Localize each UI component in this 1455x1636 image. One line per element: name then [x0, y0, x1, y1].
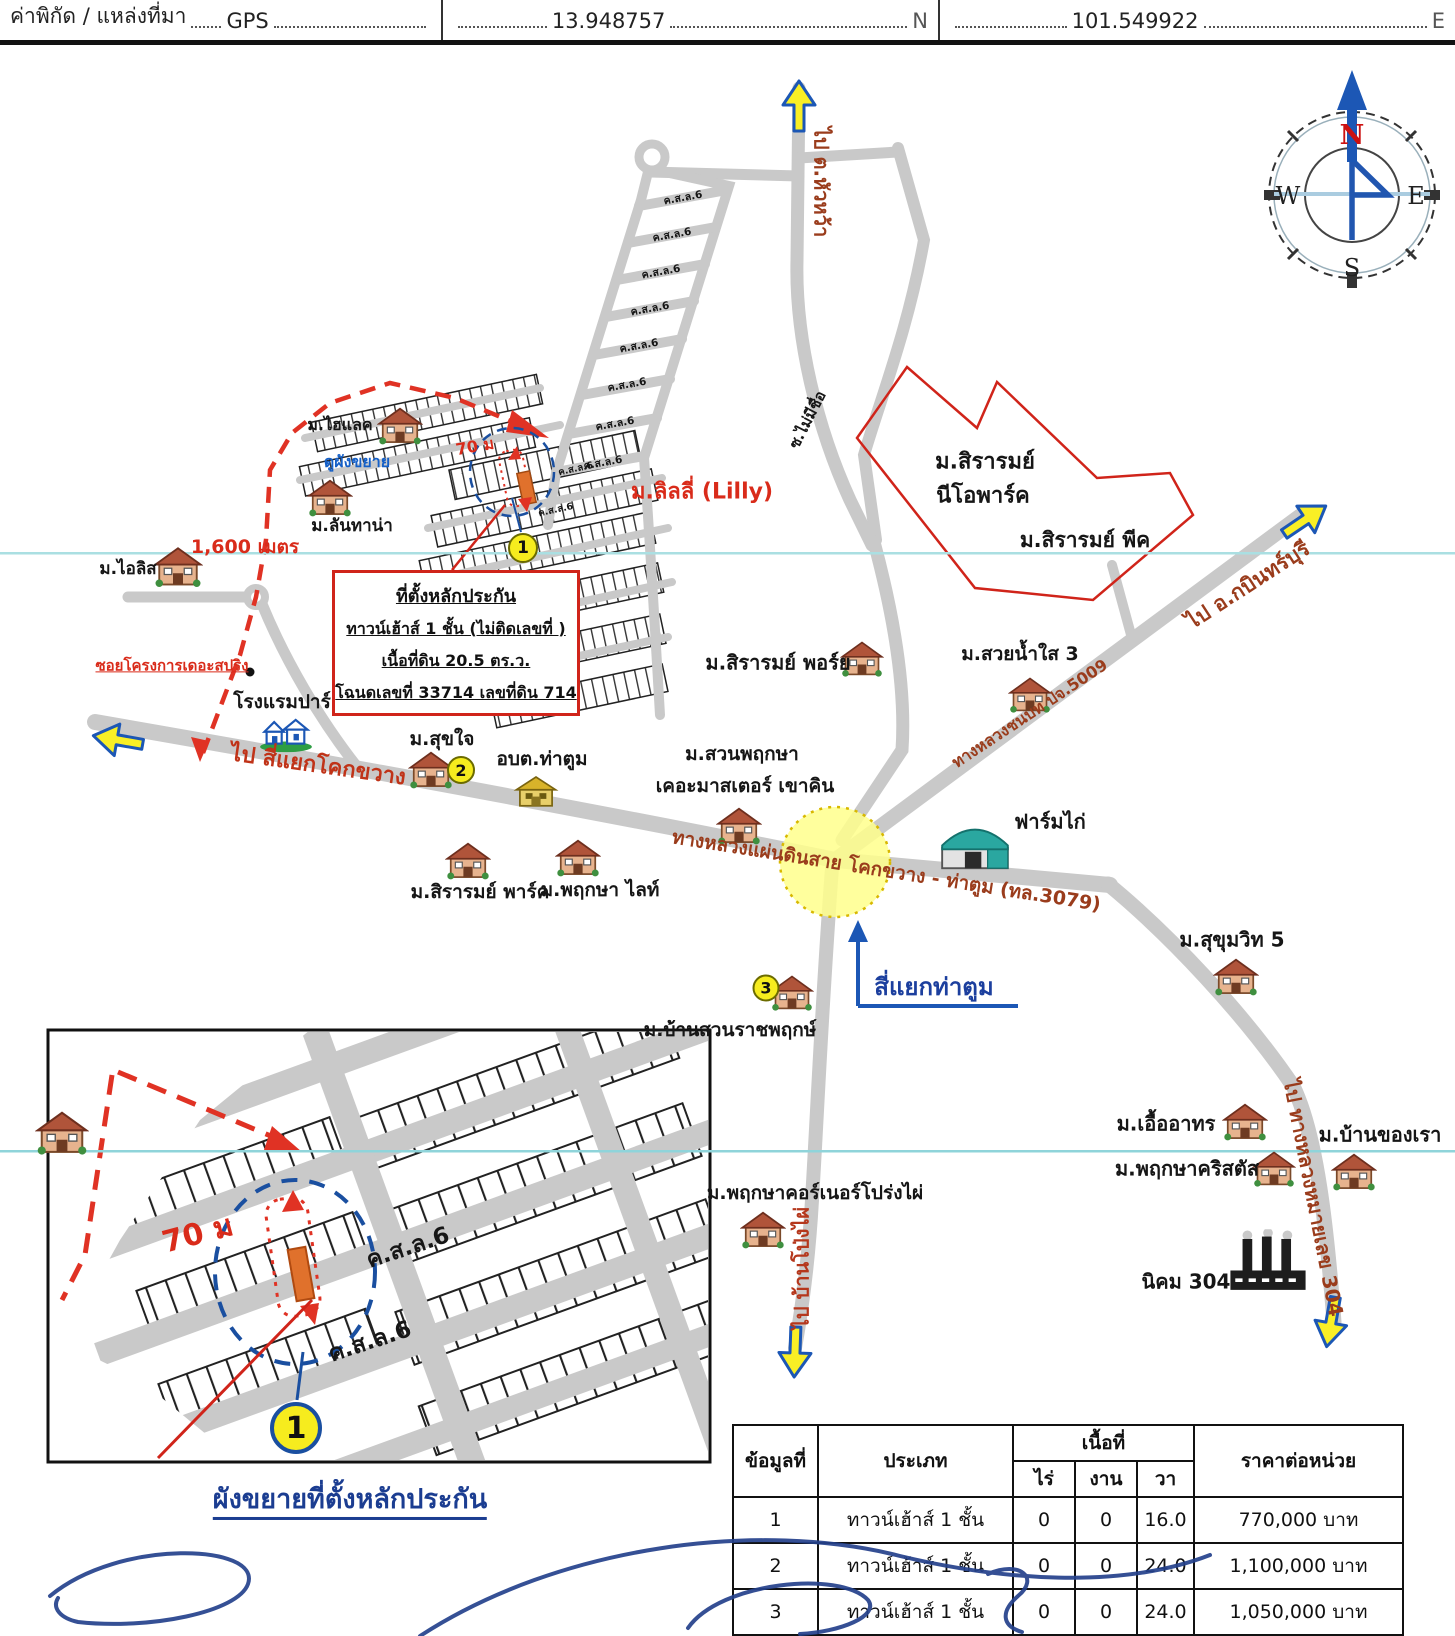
- cell-no: 3: [733, 1589, 818, 1635]
- place-iris: ม.ไอลิส: [99, 560, 156, 580]
- callout-title: ที่ตั้งหลักประกัน: [335, 581, 577, 610]
- place-baan-khong-rao: ม.บ้านของเรา: [1319, 1124, 1442, 1147]
- longitude-dir: E: [1432, 9, 1445, 33]
- place-baansuan-ratchaphruek: ม.บ้านสวนราชพฤกษ์: [644, 1020, 817, 1042]
- place-sukhumvit5: ม.สุขุมวิท 5: [1179, 929, 1284, 952]
- label-thatum-intersection: สี่แยกท่าตูม: [874, 974, 993, 1002]
- place-suay-nam-sai: ม.สวยน้ำใส 3: [961, 644, 1079, 666]
- compass-w: W: [1276, 182, 1301, 210]
- road-label-thespring: ซอยโครงการเดอะสปริง: [95, 657, 248, 674]
- badge-3: 3: [753, 975, 780, 1002]
- cell-ngan: 0: [1075, 1497, 1137, 1543]
- badge-1-main: 1: [508, 533, 538, 563]
- place-chicken-farm: ฟาร์มไก่: [1014, 811, 1085, 834]
- badge-2: 2: [447, 756, 475, 784]
- table-row: 3 ทาวน์เฮ้าส์ 1 ชั้น 0 0 24.0 1,050,000 …: [733, 1589, 1403, 1635]
- place-pruksa-light: ม.พฤกษา ไลท์: [541, 880, 660, 902]
- place-sukjai: ม.สุขใจ: [410, 729, 475, 751]
- house-icon: [555, 838, 601, 878]
- place-lilly: ม.ลิลลี่ (Lilly): [631, 479, 773, 504]
- cell-type: ทาวน์เฮ้าส์ 1 ชั้น: [818, 1589, 1013, 1635]
- inset-caption: ผังขยายที่ตั้งหลักประกัน: [213, 1484, 487, 1520]
- place-suanpruksa-line1: ม.สวนพฤกษา: [685, 744, 799, 766]
- place-suanpruksa-line2: เคอะมาสเตอร์ เขาคิน: [656, 776, 835, 798]
- house-icon: [377, 406, 423, 446]
- house-icon: [1222, 1102, 1268, 1142]
- place-nikhom-304: นิคม 304: [1142, 1271, 1231, 1294]
- cell-type: ทาวน์เฮ้าส์ 1 ชั้น: [818, 1543, 1013, 1589]
- distance-1600m: 1,600 เมตร: [191, 537, 299, 559]
- col-header-wa: วา: [1137, 1461, 1194, 1497]
- valuation-table: ข้อมูลที่ ประเภท เนื้อที่ ราคาต่อหน่วย ไ…: [732, 1424, 1404, 1636]
- cell-ngan: 0: [1075, 1543, 1137, 1589]
- arrow-south-pongphai: [778, 1326, 812, 1377]
- arrow-north-huawa: [783, 81, 815, 131]
- collateral-callout-box: ที่ตั้งหลักประกัน ทาวน์เฮ้าส์ 1 ชั้น (ไม…: [332, 570, 580, 716]
- house-icon: [740, 1210, 786, 1250]
- place-sirarom-neo-line2: นีโอพาร์ค: [936, 483, 1029, 508]
- cell-rai: 0: [1013, 1497, 1075, 1543]
- cul-de-sac: [639, 144, 665, 170]
- cell-price: 1,050,000 บาท: [1194, 1589, 1403, 1635]
- factory-icon: [1228, 1229, 1308, 1295]
- cell-rai: 0: [1013, 1543, 1075, 1589]
- cell-rai: 0: [1013, 1589, 1075, 1635]
- cell-ngan: 0: [1075, 1589, 1137, 1635]
- longitude-cell: 101.549922 E: [940, 0, 1455, 40]
- house-icon: [1331, 1152, 1377, 1192]
- appraisal-map-document: ค่าพิกัด / แหล่งที่มา GPS 13.948757 N 10…: [0, 0, 1455, 1636]
- place-lantana: ม.ลันทาน่า: [311, 517, 393, 537]
- compass-n: N: [1340, 120, 1365, 151]
- col-header-rai: ไร่: [1013, 1461, 1075, 1497]
- longitude-value: 101.549922: [1072, 9, 1199, 33]
- cell-price: 1,100,000 บาท: [1194, 1543, 1403, 1589]
- table-row: 2 ทาวน์เฮ้าส์ 1 ชั้น 0 0 24.0 1,100,000 …: [733, 1543, 1403, 1589]
- callout-line4: โฉนดเลขที่ 33714 เลขที่ดิน 714: [335, 681, 577, 706]
- callout-line2: ทาวน์เฮ้าส์ 1 ชั้น (ไม่ติดเลขที่ ): [335, 617, 577, 642]
- cell-price: 770,000 บาท: [1194, 1497, 1403, 1543]
- col-header-area: เนื้อที่: [1013, 1425, 1194, 1461]
- place-pruksa-cristal: ม.พฤกษาคริสตัส: [1115, 1158, 1259, 1181]
- house-icon: [1213, 957, 1259, 997]
- compass-needle: [1352, 150, 1388, 240]
- place-sirarom-neo-line1: ม.สิรารมย์: [935, 449, 1035, 474]
- table-row: 1 ทาวน์เฮ้าส์ 1 ชั้น 0 0 16.0 770,000 บา…: [733, 1497, 1403, 1543]
- cell-no: 2: [733, 1543, 818, 1589]
- road-label-to-huawa: ไป ต.หัวหว้า: [810, 127, 833, 237]
- coords-source-value: GPS: [226, 9, 268, 33]
- coords-label: ค่าพิกัด / แหล่งที่มา: [10, 0, 186, 33]
- compass-s: S: [1344, 254, 1360, 282]
- col-header-no: ข้อมูลที่: [733, 1425, 818, 1497]
- house-icon: [445, 841, 491, 881]
- cell-type: ทาวน์เฮ้าส์ 1 ชั้น: [818, 1497, 1013, 1543]
- compass-e: E: [1407, 182, 1425, 210]
- place-obt-thatum: อบต.ท่าตูม: [496, 749, 587, 771]
- cell-no: 1: [733, 1497, 818, 1543]
- house-icon: [307, 478, 353, 518]
- cell-wa: 24.0: [1137, 1589, 1194, 1635]
- house-icon: [35, 1109, 89, 1157]
- place-park-hotel: โรงแรมปาร์: [233, 692, 331, 714]
- coords-source-cell: ค่าพิกัด / แหล่งที่มา GPS: [0, 0, 443, 40]
- latitude-dir: N: [912, 9, 928, 33]
- cell-wa: 24.0: [1137, 1543, 1194, 1589]
- obt-building-icon: [513, 774, 559, 810]
- see-enlarged-note: ดูผังขยาย: [324, 453, 390, 471]
- badge-1-inset: 1: [270, 1402, 322, 1454]
- compass-north-arrow: [1337, 70, 1367, 110]
- place-hilake: ม.ไฮแลค: [307, 416, 372, 434]
- cell-wa: 16.0: [1137, 1497, 1194, 1543]
- warehouse-icon: [937, 824, 1013, 872]
- latitude-cell: 13.948757 N: [443, 0, 940, 40]
- place-sirarom-park: ม.สิรารมย์ พาร์ค: [411, 882, 550, 904]
- place-sirarom-porch: ม.สิรารมย์ พอร์ย: [705, 652, 850, 675]
- coords-header: ค่าพิกัด / แหล่งที่มา GPS 13.948757 N 10…: [0, 0, 1455, 45]
- place-uea-athon: ม.เอื้ออาทร: [1117, 1113, 1216, 1136]
- col-header-ngan: งาน: [1075, 1461, 1137, 1497]
- place-pruksa-corner: ม.พฤกษาคอร์เนอร์โปร่งไผ่: [707, 1183, 923, 1205]
- road-label-to-pongphai: ไป บ้านโป่งไผ่: [791, 1207, 814, 1329]
- col-header-price: ราคาต่อหน่วย: [1194, 1425, 1403, 1497]
- callout-line3: เนื้อที่ดิน 20.5 ตร.ว.: [335, 649, 577, 674]
- place-sirarom-peak: ม.สิรารมย์ พีค: [1020, 528, 1150, 552]
- col-header-type: ประเภท: [818, 1425, 1013, 1497]
- compass-rose: N W E S: [1252, 68, 1452, 318]
- latitude-value: 13.948757: [552, 9, 666, 33]
